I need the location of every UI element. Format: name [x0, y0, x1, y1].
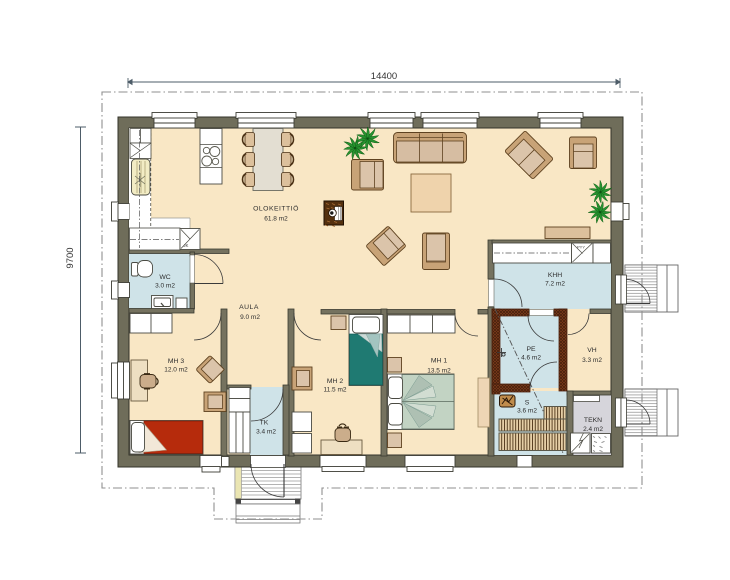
svg-text:61.8 m2: 61.8 m2 — [264, 216, 288, 223]
svg-text:KHH: KHH — [548, 272, 562, 279]
svg-text:MH 3: MH 3 — [168, 358, 184, 365]
svg-text:AULA: AULA — [239, 304, 259, 311]
svg-text:MH 1: MH 1 — [431, 358, 447, 365]
svg-text:PYY: PYY — [577, 245, 585, 250]
svg-text:3.4 m2: 3.4 m2 — [256, 429, 276, 436]
svg-text:4.6 m2: 4.6 m2 — [521, 355, 541, 362]
svg-text:9700: 9700 — [65, 247, 76, 268]
svg-text:WC: WC — [159, 274, 170, 281]
svg-text:11.5 m2: 11.5 m2 — [323, 387, 346, 394]
svg-text:12.0 m2: 12.0 m2 — [164, 367, 188, 374]
svg-text:14400: 14400 — [371, 71, 397, 82]
svg-text:JK: JK — [184, 243, 189, 248]
svg-text:OLOKEITTIÖ: OLOKEITTIÖ — [253, 205, 299, 213]
svg-text:S: S — [525, 400, 530, 407]
svg-text:TEKN: TEKN — [584, 417, 602, 424]
svg-text:7.2 m2: 7.2 m2 — [545, 281, 565, 288]
svg-text:9.0 m2: 9.0 m2 — [240, 314, 260, 321]
svg-text:3.0 m2: 3.0 m2 — [155, 283, 175, 290]
svg-text:13.5 m2: 13.5 m2 — [427, 368, 451, 375]
svg-text:MH 2: MH 2 — [327, 378, 343, 385]
svg-text:3.6 m2: 3.6 m2 — [517, 408, 537, 415]
svg-text:2.4 m2: 2.4 m2 — [583, 426, 603, 433]
svg-text:PE: PE — [526, 346, 536, 353]
svg-text:TK: TK — [260, 420, 269, 427]
svg-text:VH: VH — [587, 347, 597, 354]
svg-text:3.3 m2: 3.3 m2 — [582, 357, 602, 364]
